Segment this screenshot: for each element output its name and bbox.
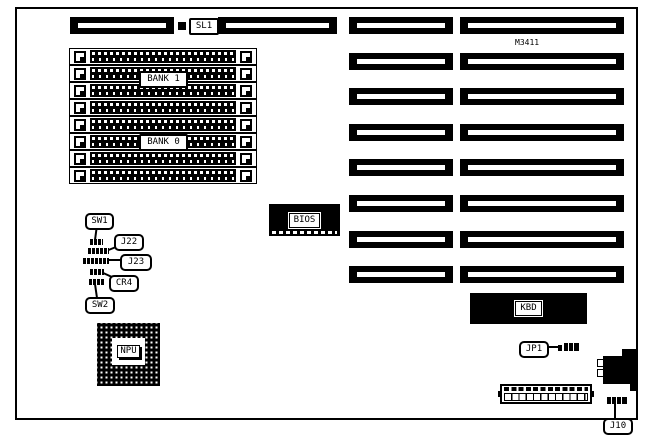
top-slot-bar [70, 17, 174, 34]
slot-opening [357, 272, 445, 277]
sw1-switch [90, 239, 103, 245]
socket-clip-right [240, 85, 252, 97]
simm-socket [69, 150, 257, 167]
simm-socket [69, 167, 257, 184]
top-slot-bar [218, 17, 337, 34]
din-mount-tab [597, 369, 604, 377]
simm-contact-row [90, 118, 236, 131]
expansion-slot-long-segment [460, 124, 624, 141]
label-sl1: SL1 [189, 18, 219, 35]
slot-opening [357, 165, 445, 170]
board-model: M3411 [515, 38, 539, 47]
power-connector-notch-right [591, 391, 594, 397]
socket-clip-left [74, 68, 86, 80]
slot-opening [357, 201, 445, 206]
slot-opening [468, 130, 616, 135]
bios-chip: BIOS [269, 204, 340, 236]
socket-clip-left [74, 153, 86, 165]
slot-opening [468, 237, 616, 242]
keyboard-din-connector [603, 356, 636, 384]
slot-opening [468, 272, 616, 277]
j22-header [88, 248, 109, 254]
socket-clip-right [240, 102, 252, 114]
jp1-jumper-block [564, 343, 579, 351]
expansion-slot-short-segment [349, 159, 453, 176]
socket-clip-left [74, 85, 86, 97]
keyboard-din-connector-top [622, 349, 636, 357]
slot-opening [357, 130, 445, 135]
label-kbd: KBD [515, 301, 541, 316]
slot-opening [357, 94, 445, 99]
label-bank0: BANK 0 [139, 134, 188, 151]
slot-opening [468, 165, 616, 170]
npu-socket-center: NPU [112, 338, 145, 365]
socket-clip-right [240, 170, 252, 182]
slot-opening [357, 23, 445, 28]
expansion-slot-long-segment [460, 159, 624, 176]
power-connector [500, 384, 592, 404]
label-bios: BIOS [289, 213, 321, 228]
socket-clip-left [74, 136, 86, 148]
label-jp1: JP1 [519, 341, 549, 358]
slot-opening [468, 201, 616, 206]
simm-socket [69, 99, 257, 116]
keyboard-din-connector-bottom [630, 383, 636, 391]
simm-contact-row [90, 169, 236, 182]
socket-clip-right [240, 136, 252, 148]
socket-clip-left [74, 119, 86, 131]
expansion-slot-short-segment [349, 53, 453, 70]
expansion-slot-short-segment [349, 266, 453, 283]
power-connector-pins [504, 387, 588, 391]
expansion-slot-long-segment [460, 195, 624, 212]
expansion-slot-short-segment [349, 195, 453, 212]
slot-opening [468, 94, 616, 99]
label-bank1: BANK 1 [139, 71, 188, 88]
socket-clip-right [240, 51, 252, 63]
label-cr4: CR4 [109, 275, 139, 292]
socket-clip-left [74, 170, 86, 182]
simm-contact-row [90, 101, 236, 114]
label-j23: J23 [120, 254, 152, 271]
socket-clip-left [74, 102, 86, 114]
simm-socket [69, 116, 257, 133]
expansion-slot-long-segment [460, 88, 624, 105]
jp1-pin [558, 345, 562, 351]
expansion-slot-long-segment [460, 17, 624, 34]
slot-opening [226, 23, 329, 28]
power-connector-notch-left [498, 391, 501, 397]
slot-opening [357, 237, 445, 242]
sw2-switch [89, 279, 104, 285]
motherboard-diagram-page: SL1 M3411 BANK 1 BANK 0 BIOS SW1 J22 J23… [0, 0, 661, 441]
label-sw1: SW1 [85, 213, 114, 230]
simm-contact-row [90, 152, 236, 165]
keyboard-controller-chip: KBD [470, 293, 587, 324]
expansion-slot-short-segment [349, 88, 453, 105]
slot-opening [468, 59, 616, 64]
motherboard-outline: SL1 M3411 BANK 1 BANK 0 BIOS SW1 J22 J23… [15, 7, 638, 420]
j10-header [607, 397, 627, 404]
slot-opening [357, 59, 445, 64]
expansion-slot-long-segment [460, 53, 624, 70]
label-sw2: SW2 [85, 297, 115, 314]
expansion-slot-long-segment [460, 266, 624, 283]
expansion-slot-short-segment [349, 231, 453, 248]
expansion-slot-short-segment [349, 17, 453, 34]
slot-opening [468, 23, 616, 28]
socket-clip-right [240, 68, 252, 80]
npu-socket: NPU [97, 323, 160, 386]
expansion-slot-short-segment [349, 124, 453, 141]
simm-socket [69, 48, 257, 65]
socket-clip-right [240, 153, 252, 165]
slot-opening [78, 23, 166, 28]
socket-clip-right [240, 119, 252, 131]
sl1-pad [178, 22, 186, 30]
simm-contact-row [90, 50, 236, 63]
din-mount-tab [597, 359, 604, 367]
label-npu: NPU [117, 345, 139, 358]
j23-header [83, 258, 109, 264]
socket-clip-left [74, 51, 86, 63]
cr4-component [90, 269, 104, 275]
power-connector-sockets [504, 393, 588, 401]
expansion-slot-long-segment [460, 231, 624, 248]
label-j22: J22 [114, 234, 144, 251]
label-j10: J10 [603, 418, 633, 435]
